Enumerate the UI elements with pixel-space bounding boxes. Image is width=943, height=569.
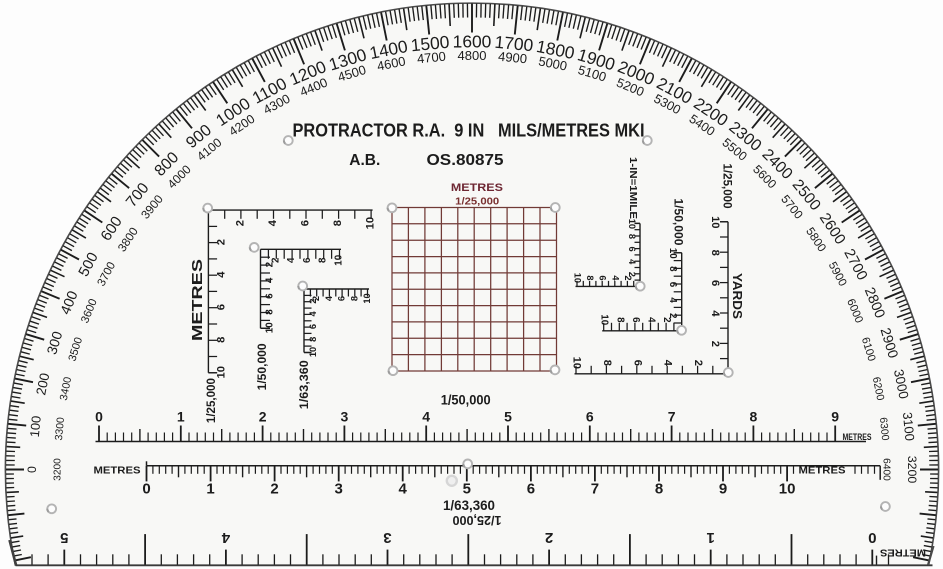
svg-text:7: 7 (668, 409, 676, 425)
svg-text:PROTRACTOR R.A. 9 IN MILS/M: PROTRACTOR R.A. 9 IN MILS/METRES MKI (293, 120, 645, 140)
svg-text:4800: 4800 (458, 48, 487, 63)
svg-text:9: 9 (831, 409, 839, 425)
svg-text:3100: 3100 (900, 411, 918, 441)
svg-text:METRES: METRES (880, 546, 926, 558)
svg-text:METRES: METRES (451, 182, 503, 194)
svg-text:8: 8 (709, 250, 721, 256)
svg-text:2: 2 (270, 481, 278, 498)
svg-text:4: 4 (267, 219, 279, 226)
svg-text:10: 10 (308, 347, 318, 357)
svg-text:1/25,000: 1/25,000 (453, 513, 502, 528)
svg-text:10: 10 (571, 357, 583, 369)
svg-text:5: 5 (60, 529, 68, 546)
svg-text:4: 4 (709, 310, 721, 317)
svg-text:1-IN=1MILE: 1-IN=1MILE (627, 157, 639, 219)
svg-text:6: 6 (337, 296, 347, 301)
svg-text:6: 6 (586, 409, 594, 425)
svg-text:3: 3 (383, 529, 391, 546)
svg-text:4: 4 (422, 409, 430, 425)
svg-text:6: 6 (709, 280, 721, 286)
svg-text:10: 10 (779, 481, 796, 498)
svg-text:1/25,000: 1/25,000 (455, 197, 499, 208)
svg-text:6: 6 (667, 282, 678, 288)
svg-text:1/63,360: 1/63,360 (443, 498, 495, 513)
svg-text:2: 2 (627, 272, 637, 277)
svg-text:9: 9 (719, 481, 727, 498)
svg-text:10: 10 (709, 216, 721, 228)
svg-text:METRES: METRES (94, 466, 141, 477)
svg-text:6: 6 (302, 257, 313, 263)
svg-text:4: 4 (646, 317, 657, 323)
svg-text:8: 8 (349, 296, 359, 301)
svg-text:5: 5 (504, 409, 512, 425)
svg-text:2: 2 (265, 261, 276, 267)
svg-text:4: 4 (324, 295, 334, 301)
svg-text:YARDS: YARDS (730, 273, 744, 319)
svg-text:4: 4 (265, 277, 276, 283)
svg-text:6: 6 (631, 360, 643, 366)
svg-text:10: 10 (215, 366, 227, 378)
svg-text:OS.80875: OS.80875 (427, 152, 504, 169)
svg-text:7: 7 (591, 481, 599, 498)
svg-text:8: 8 (215, 337, 227, 343)
svg-text:1/50,000: 1/50,000 (671, 198, 683, 245)
svg-text:2: 2 (667, 313, 678, 319)
svg-text:A.B.: A.B. (349, 152, 380, 169)
svg-text:6: 6 (300, 220, 312, 226)
svg-text:8: 8 (585, 275, 595, 280)
svg-text:100: 100 (27, 415, 44, 438)
svg-text:6: 6 (527, 481, 535, 498)
svg-text:10: 10 (573, 273, 583, 283)
svg-text:2: 2 (709, 341, 721, 347)
svg-text:10: 10 (334, 254, 345, 265)
svg-text:6: 6 (630, 317, 641, 323)
svg-text:8: 8 (265, 309, 276, 315)
svg-text:2: 2 (692, 360, 704, 366)
svg-text:10: 10 (365, 217, 377, 229)
svg-text:4: 4 (286, 257, 297, 263)
svg-text:3200: 3200 (905, 456, 919, 484)
svg-text:4: 4 (221, 529, 230, 546)
svg-text:2: 2 (545, 529, 553, 546)
svg-text:4900: 4900 (497, 49, 527, 67)
svg-text:8: 8 (601, 360, 613, 366)
svg-text:4: 4 (308, 310, 318, 316)
svg-text:6: 6 (215, 304, 227, 310)
svg-text:8: 8 (614, 317, 625, 323)
svg-text:8: 8 (332, 220, 344, 226)
svg-text:1/50,000: 1/50,000 (255, 343, 269, 390)
svg-text:10: 10 (667, 248, 678, 259)
svg-text:0: 0 (868, 529, 876, 546)
svg-text:1: 1 (707, 529, 715, 546)
svg-text:3200: 3200 (53, 458, 64, 481)
svg-text:10: 10 (627, 219, 637, 229)
svg-text:6400: 6400 (881, 458, 892, 481)
svg-text:8: 8 (667, 266, 678, 272)
svg-text:2: 2 (259, 409, 267, 425)
svg-text:10: 10 (362, 293, 372, 303)
svg-text:1: 1 (206, 481, 214, 498)
svg-text:6: 6 (265, 293, 276, 299)
svg-text:10: 10 (599, 314, 610, 325)
svg-text:2: 2 (215, 239, 227, 245)
svg-text:3: 3 (341, 409, 349, 425)
svg-text:2: 2 (308, 299, 318, 304)
svg-text:4: 4 (399, 481, 408, 498)
svg-text:5: 5 (463, 481, 471, 498)
svg-text:4: 4 (627, 259, 637, 265)
svg-text:4: 4 (610, 275, 620, 281)
svg-text:1/25,000: 1/25,000 (721, 164, 733, 209)
svg-text:3300: 3300 (53, 417, 67, 442)
svg-text:4: 4 (215, 271, 227, 278)
svg-text:METRES: METRES (843, 432, 872, 443)
svg-text:4700: 4700 (416, 49, 446, 67)
svg-text:8: 8 (627, 234, 637, 239)
svg-text:6: 6 (598, 275, 608, 280)
svg-text:METRES: METRES (799, 465, 846, 476)
svg-text:1/50,000: 1/50,000 (441, 392, 491, 408)
svg-text:1/25,000: 1/25,000 (204, 378, 218, 423)
svg-text:1: 1 (177, 409, 185, 425)
svg-text:8: 8 (750, 409, 758, 425)
svg-text:METRES: METRES (189, 259, 206, 341)
svg-text:4: 4 (667, 297, 678, 303)
svg-text:10: 10 (265, 322, 276, 333)
svg-text:6300: 6300 (877, 417, 891, 442)
svg-text:2: 2 (234, 220, 246, 226)
svg-text:8: 8 (318, 257, 329, 263)
svg-text:3: 3 (335, 481, 343, 498)
svg-text:0: 0 (95, 409, 103, 425)
svg-text:4: 4 (662, 360, 674, 367)
svg-text:8: 8 (308, 337, 318, 342)
svg-text:8: 8 (655, 481, 663, 498)
svg-text:0: 0 (142, 481, 150, 498)
svg-text:0: 0 (25, 466, 39, 473)
svg-text:1/63,360: 1/63,360 (297, 360, 311, 409)
svg-text:6: 6 (627, 247, 637, 252)
svg-text:6: 6 (308, 324, 318, 329)
